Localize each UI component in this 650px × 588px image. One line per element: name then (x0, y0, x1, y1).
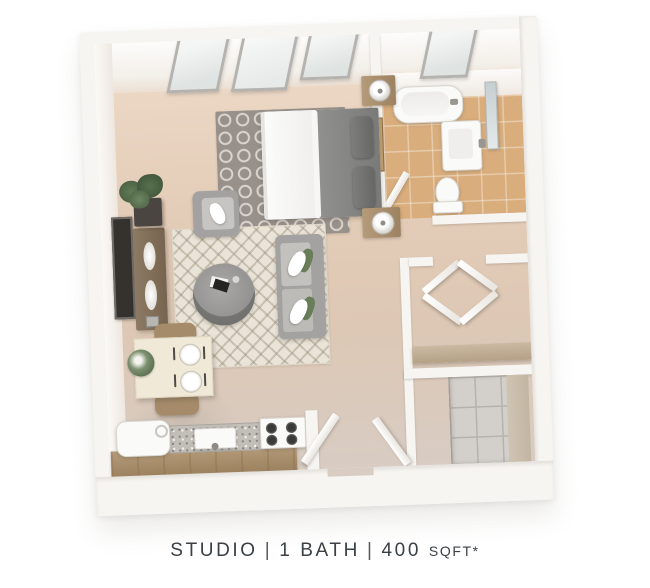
fork-2 (174, 374, 176, 387)
bathtub-faucet (450, 99, 458, 105)
plant-leaves-3 (129, 190, 150, 209)
caption-area: 400 (382, 540, 422, 561)
caption-plan-type: STUDIO (170, 540, 257, 561)
bed-pillow-1 (351, 116, 375, 159)
stove (260, 417, 307, 450)
console-decor-1 (143, 242, 156, 270)
storage-panels (448, 375, 511, 464)
burner-1 (266, 423, 277, 434)
dining-table (134, 336, 214, 399)
knife-1 (203, 346, 205, 359)
media-console (133, 228, 169, 331)
console-decor-2 (144, 280, 157, 310)
toilet-tank (433, 201, 463, 214)
table-flowers (127, 349, 155, 377)
caption-baths: 1 BATH (279, 540, 360, 561)
kitchen-sink (194, 427, 237, 450)
bathtub-basin (401, 91, 450, 117)
loveseat (275, 234, 327, 340)
bathroom-sink (441, 120, 483, 171)
page: { "caption": { "plan_type": "STUDIO", "s… (0, 0, 650, 588)
burner-4 (286, 434, 297, 445)
caption-area-unit: SQFT* (429, 543, 480, 559)
sink-basin (448, 128, 473, 159)
knife-2 (204, 373, 206, 386)
fridge (116, 420, 171, 458)
plate-2 (180, 370, 203, 393)
closet-opening-wall-right (486, 253, 528, 264)
coffee-table-cup (232, 276, 239, 283)
caption-separator-2: | (367, 540, 375, 561)
bathroom-mirror (484, 81, 498, 149)
floorplan (79, 16, 554, 516)
caption: STUDIO|1 BATH|400 SQFT* (0, 540, 650, 562)
bed-pillow-2 (352, 166, 376, 209)
storage-wood-panel (506, 374, 531, 462)
burner-3 (266, 435, 277, 446)
armchair (192, 190, 240, 238)
bathtub (392, 85, 463, 125)
entry-door-gap (327, 467, 373, 477)
caption-separator-1: | (265, 540, 273, 561)
sink-faucet (478, 139, 485, 148)
fridge-hinge (155, 425, 168, 438)
bed (260, 108, 382, 220)
fork-1 (173, 347, 175, 360)
plate-1 (179, 343, 202, 366)
burner-2 (286, 422, 297, 433)
closet-opening-wall-left (409, 257, 433, 267)
